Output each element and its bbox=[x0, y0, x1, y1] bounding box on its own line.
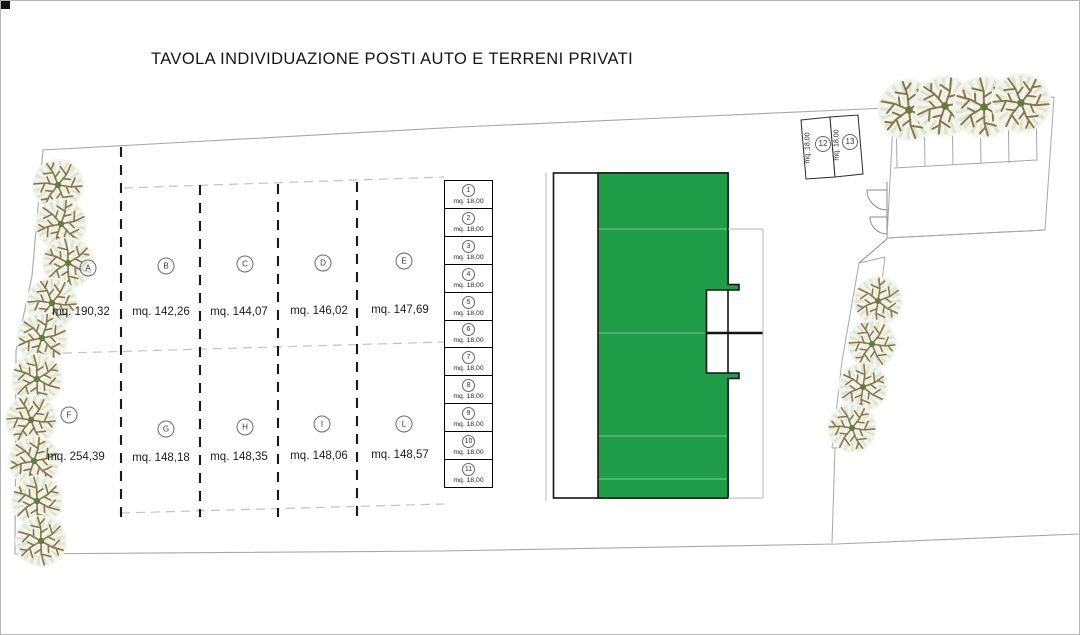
parking-space-number: 5 bbox=[462, 296, 475, 309]
parking-space-area: mq. 18,00 bbox=[453, 449, 483, 456]
parking-space-3: 3 mq. 18,00 bbox=[445, 237, 492, 265]
site-plan-drawing bbox=[1, 1, 1080, 635]
plot-label-b: B bbox=[158, 258, 175, 275]
parking-space-number: 2 bbox=[462, 212, 475, 225]
page-title: TAVOLA INDIVIDUAZIONE POSTI AUTO E TERRE… bbox=[151, 50, 633, 69]
plot-label-l: L bbox=[396, 416, 413, 433]
parking-space-number: 3 bbox=[462, 240, 475, 253]
plot-area-c: mq. 144,07 bbox=[210, 306, 268, 318]
parking-column: 1 mq. 18,00 2 mq. 18,00 3 mq. 18,00 4 mq… bbox=[444, 180, 493, 488]
parking-space-5: 5 mq. 18,00 bbox=[445, 293, 492, 321]
plot-area-d: mq. 146,02 bbox=[290, 305, 348, 317]
parking-space-area: mq. 18,00 bbox=[453, 477, 483, 484]
trees-right-strip bbox=[818, 267, 911, 461]
parking-space-area: mq. 18,00 bbox=[453, 198, 483, 205]
parking-space-1: 1 mq. 18,00 bbox=[445, 181, 492, 209]
parking-space-number: 8 bbox=[462, 379, 475, 392]
gate-door-swings bbox=[859, 182, 1045, 263]
plot-area-g: mq. 148,18 bbox=[132, 452, 190, 464]
building-annex-outline bbox=[728, 229, 763, 498]
plot-label-e: E bbox=[396, 253, 413, 270]
parking-space-number: 4 bbox=[462, 268, 475, 281]
parking-space-4: 4 mq. 18,00 bbox=[445, 265, 492, 293]
plot-label-d: D bbox=[315, 255, 332, 272]
parking-space-number: 10 bbox=[462, 435, 475, 448]
sheet-corner-mark bbox=[1, 1, 10, 9]
parking-space-area: mq. 18,00 bbox=[453, 282, 483, 289]
plot-area-i: mq. 148,06 bbox=[290, 450, 348, 462]
parking-space-12-area: mq. 18,00 bbox=[805, 132, 812, 163]
parking-space-6: 6 mq. 18,00 bbox=[445, 321, 492, 349]
parking-space-11: 11 mq. 18,00 bbox=[445, 460, 492, 487]
parking-space-10: 10 mq. 18,00 bbox=[445, 432, 492, 460]
plot-area-e: mq. 147,69 bbox=[371, 304, 429, 316]
parking-space-area: mq. 18,00 bbox=[453, 337, 483, 344]
plot-label-g: G bbox=[158, 421, 175, 438]
site-boundary bbox=[15, 108, 1079, 554]
plot-area-a: mq. 190,32 bbox=[52, 306, 110, 318]
parking-space-12-number: 12 bbox=[815, 136, 831, 152]
parking-space-7: 7 mq. 18,00 bbox=[445, 348, 492, 376]
parking-space-number: 7 bbox=[462, 351, 475, 364]
plot-area-b: mq. 142,26 bbox=[132, 306, 190, 318]
trees-top-right-row bbox=[871, 62, 1062, 148]
plot-label-h: H bbox=[237, 419, 254, 436]
parking-space-area: mq. 18,00 bbox=[453, 393, 483, 400]
plot-label-f: F bbox=[61, 407, 78, 424]
plot-label-c: C bbox=[237, 256, 254, 273]
plot-area-h: mq. 148,35 bbox=[210, 451, 268, 463]
parking-space-area: mq. 18,00 bbox=[453, 226, 483, 233]
parking-space-number: 11 bbox=[462, 463, 475, 476]
parking-space-9: 9 mq. 18,00 bbox=[445, 404, 492, 432]
plot-label-a: A bbox=[80, 260, 97, 277]
parking-space-number: 1 bbox=[462, 184, 475, 197]
trees-left-hedge bbox=[1, 159, 98, 574]
plot-area-f: mq. 254,39 bbox=[47, 451, 105, 463]
parking-space-number: 6 bbox=[462, 323, 475, 336]
parking-space-13-number: 13 bbox=[842, 134, 858, 150]
site-plan-sheet: TAVOLA INDIVIDUAZIONE POSTI AUTO E TERRE… bbox=[0, 0, 1080, 635]
parking-space-number: 9 bbox=[462, 407, 475, 420]
parking-space-8: 8 mq. 18,00 bbox=[445, 376, 492, 404]
parking-space-area: mq. 18,00 bbox=[453, 365, 483, 372]
parking-space-13-area: mq. 18,00 bbox=[834, 129, 841, 160]
parking-space-area: mq. 18,00 bbox=[453, 254, 483, 261]
parking-space-2: 2 mq. 18,00 bbox=[445, 209, 492, 237]
plot-label-i: I bbox=[314, 416, 331, 433]
parking-space-area: mq. 18,00 bbox=[453, 421, 483, 428]
plot-area-l: mq. 148,57 bbox=[371, 449, 429, 461]
parking-space-area: mq. 18,00 bbox=[453, 310, 483, 317]
